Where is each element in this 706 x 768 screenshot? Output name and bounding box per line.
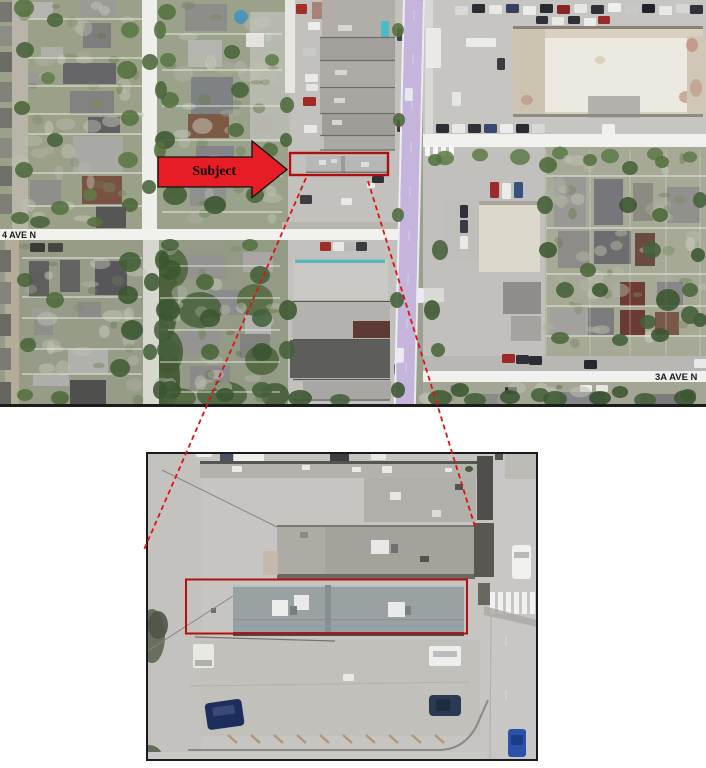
svg-text:4 AVE N: 4 AVE N xyxy=(2,230,36,240)
svg-text:3A AVE N: 3A AVE N xyxy=(655,372,698,383)
svg-text:Subject: Subject xyxy=(193,163,237,178)
